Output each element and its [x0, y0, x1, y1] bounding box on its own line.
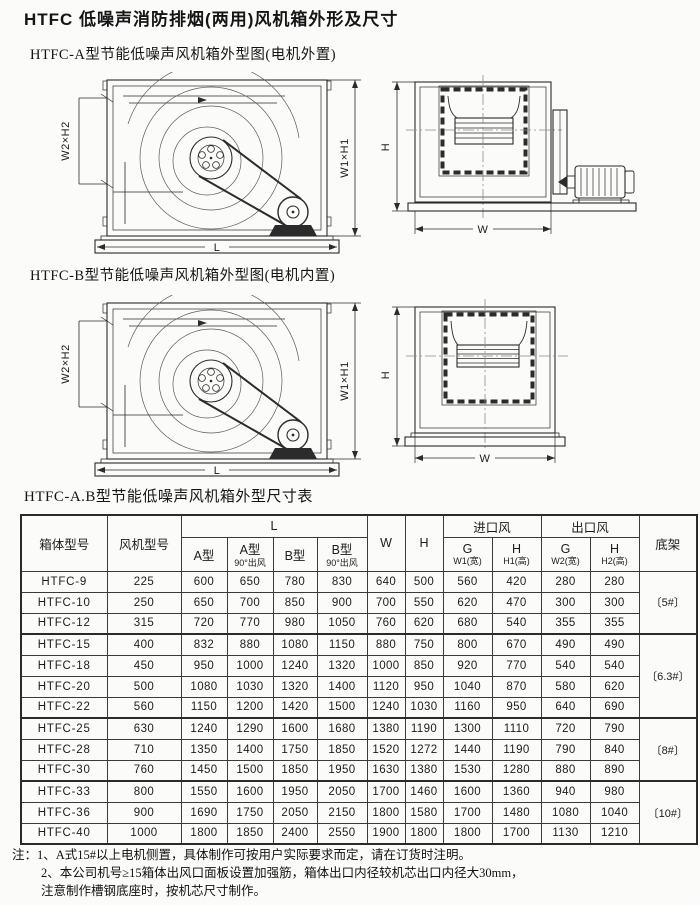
cell-value: 950 — [405, 676, 443, 697]
cell-value: 800 — [107, 781, 181, 802]
cell-value: 1690 — [181, 802, 227, 823]
cell-value: 840 — [590, 739, 639, 760]
table-row: HTFC-36900169017502050215018001580170014… — [21, 802, 697, 823]
cell-value: 1130 — [541, 823, 590, 844]
cell-value: 1600 — [227, 781, 273, 802]
cell-value: 1080 — [541, 802, 590, 823]
dimension-table-body: HTFC-9225600650780830640500560420280280〔… — [21, 571, 697, 844]
cell-value: 1050 — [317, 613, 367, 634]
cell-value: 830 — [317, 571, 367, 592]
cell-frame: 〔10#〕 — [639, 781, 697, 844]
table-row: HTFC-9225600650780830640500560420280280〔… — [21, 571, 697, 592]
cell-box-model: HTFC-18 — [21, 655, 107, 676]
cell-value: 880 — [227, 634, 273, 655]
cell-value: 1360 — [492, 781, 541, 802]
cell-value: 1210 — [590, 823, 639, 844]
cell-box-model: HTFC-30 — [21, 760, 107, 781]
col-header-frame: 底架 — [639, 515, 697, 571]
cell-value: 1272 — [405, 739, 443, 760]
cell-value: 355 — [590, 613, 639, 634]
table-row: HTFC-40100018001850240025501900180018001… — [21, 823, 697, 844]
cell-value: 490 — [541, 634, 590, 655]
cell-value: 780 — [273, 571, 317, 592]
cell-box-model: HTFC-10 — [21, 592, 107, 613]
cell-value: 600 — [181, 571, 227, 592]
cell-value: 1440 — [443, 739, 492, 760]
cell-value: 1120 — [367, 676, 405, 697]
cell-value: 750 — [405, 634, 443, 655]
cell-value: 250 — [107, 592, 181, 613]
table-row: HTFC-10250650700850900700550620470300300 — [21, 592, 697, 613]
cell-value: 1150 — [181, 697, 227, 718]
cell-value: 1240 — [181, 718, 227, 739]
cell-value: 690 — [590, 697, 639, 718]
cell-value: 670 — [492, 634, 541, 655]
cell-box-model: HTFC-9 — [21, 571, 107, 592]
cell-value: 1750 — [227, 802, 273, 823]
cell-value: 1320 — [317, 655, 367, 676]
page-title: HTFC 低噪声消防排烟(两用)风机箱外形及尺寸 — [24, 5, 398, 30]
col-header-inlet-group: 进口风 — [443, 515, 541, 537]
cell-value: 1800 — [367, 802, 405, 823]
cell-value: 1750 — [273, 739, 317, 760]
table-row: HTFC-15400832880108011508807508006704904… — [21, 634, 697, 655]
cell-value: 2050 — [273, 802, 317, 823]
cell-value: 550 — [405, 592, 443, 613]
cell-value: 225 — [107, 571, 181, 592]
cell-value: 1500 — [227, 760, 273, 781]
col-header-fan-model: 风机型号 — [107, 515, 181, 571]
cell-value: 1600 — [273, 718, 317, 739]
cell-value: 850 — [273, 592, 317, 613]
cell-value: 620 — [590, 676, 639, 697]
cell-value: 300 — [541, 592, 590, 613]
cell-value: 900 — [107, 802, 181, 823]
footnote-line: 注：1、A式15#以上电机侧置，具体制作可按用户实际要求而定，请在订货时注明。 — [12, 846, 688, 864]
cell-value: 1190 — [405, 718, 443, 739]
cell-value: 1350 — [181, 739, 227, 760]
col-header-outlet-h2: HH2(高) — [590, 537, 639, 571]
cell-value: 540 — [590, 655, 639, 676]
dim-label-w: W — [480, 453, 491, 465]
cell-value: 620 — [405, 613, 443, 634]
cell-frame: 〔6.3#〕 — [639, 634, 697, 718]
cell-value: 890 — [590, 760, 639, 781]
cell-value: 1630 — [367, 760, 405, 781]
col-header-box-model: 箱体型号 — [21, 515, 107, 571]
table-row: HTFC-22560115012001420150012401030116095… — [21, 697, 697, 718]
cell-value: 1280 — [492, 760, 541, 781]
dim-label-l: L — [214, 465, 221, 477]
cell-value: 280 — [590, 571, 639, 592]
col-header-l-a90: A型90°出风 — [227, 537, 273, 571]
table-row: HTFC-28710135014001750185015201272144011… — [21, 739, 697, 760]
figure-b-caption: HTFC-B型节能低噪声风机箱外型图(电机内置) — [30, 264, 335, 285]
figure-a-side-view: W2×H2 W1×H1 L — [30, 72, 370, 257]
figure-a-front-view: H W — [378, 72, 698, 257]
cell-value: 1080 — [273, 634, 317, 655]
cell-value: 2400 — [273, 823, 317, 844]
cell-box-model: HTFC-33 — [21, 781, 107, 802]
dimension-table: 箱体型号 风机型号 L W H 进口风 出口风 底架 A型 A型90°出风 B型… — [20, 514, 698, 845]
cell-value: 1600 — [443, 781, 492, 802]
cell-value: 640 — [541, 697, 590, 718]
cell-value: 710 — [107, 739, 181, 760]
cell-value: 490 — [590, 634, 639, 655]
cell-value: 580 — [541, 676, 590, 697]
cell-value: 1160 — [443, 697, 492, 718]
cell-value: 1520 — [367, 739, 405, 760]
col-header-outlet-w2: GW2(宽) — [541, 537, 590, 571]
dim-label-w2h2: W2×H2 — [60, 344, 72, 384]
col-header-outlet-group: 出口风 — [541, 515, 639, 537]
cell-value: 2150 — [317, 802, 367, 823]
cell-value: 770 — [492, 655, 541, 676]
cell-value: 1030 — [227, 676, 273, 697]
col-header-inlet-h1: HH1(高) — [492, 537, 541, 571]
cell-box-model: HTFC-22 — [21, 697, 107, 718]
col-header-l-a: A型 — [181, 537, 227, 571]
table-row: HTFC-25630124012901600168013801190130011… — [21, 718, 697, 739]
cell-value: 650 — [181, 592, 227, 613]
cell-value: 1400 — [227, 739, 273, 760]
cell-value: 1460 — [405, 781, 443, 802]
cell-value: 1240 — [273, 655, 317, 676]
cell-value: 980 — [273, 613, 317, 634]
cell-frame: 〔8#〕 — [639, 718, 697, 781]
cell-value: 450 — [107, 655, 181, 676]
col-header-l-group: L — [181, 515, 367, 537]
cell-value: 1080 — [181, 676, 227, 697]
cell-value: 1850 — [227, 823, 273, 844]
cell-value: 640 — [367, 571, 405, 592]
cell-box-model: HTFC-28 — [21, 739, 107, 760]
cell-box-model: HTFC-15 — [21, 634, 107, 655]
cell-value: 1500 — [317, 697, 367, 718]
cell-value: 1800 — [181, 823, 227, 844]
cell-value: 1030 — [405, 697, 443, 718]
cell-value: 700 — [227, 592, 273, 613]
dim-label-h: H — [380, 371, 392, 379]
cell-value: 1480 — [492, 802, 541, 823]
cell-value: 1950 — [317, 760, 367, 781]
cell-value: 420 — [492, 571, 541, 592]
cell-value: 500 — [107, 676, 181, 697]
cell-value: 790 — [590, 718, 639, 739]
cell-value: 560 — [107, 697, 181, 718]
cell-value: 1900 — [367, 823, 405, 844]
cell-value: 760 — [367, 613, 405, 634]
table-row: HTFC-12315720770980105076062068054035535… — [21, 613, 697, 634]
cell-box-model: HTFC-36 — [21, 802, 107, 823]
footnote-line: 2、本公司机号≥15箱体出风口面板设置加强筋，箱体出口内径较机芯出口内径大30m… — [41, 864, 688, 882]
cell-value: 300 — [590, 592, 639, 613]
table-row: HTFC-30760145015001850195016301380153012… — [21, 760, 697, 781]
cell-value: 280 — [541, 571, 590, 592]
cell-frame: 〔5#〕 — [639, 571, 697, 634]
fan-box-side-drawing — [79, 295, 361, 476]
dim-label-w2h2: W2×H2 — [60, 121, 72, 161]
dim-label-w1h1: W1×H1 — [339, 138, 351, 178]
cell-value: 1800 — [405, 823, 443, 844]
cell-value: 700 — [367, 592, 405, 613]
cell-value: 1190 — [492, 739, 541, 760]
cell-box-model: HTFC-20 — [21, 676, 107, 697]
col-header-h: H — [405, 515, 443, 571]
cell-value: 1950 — [273, 781, 317, 802]
figure-a-caption: HTFC-A型节能低噪声风机箱外型图(电机外置) — [30, 43, 336, 64]
cell-box-model: HTFC-40 — [21, 823, 107, 844]
cell-value: 720 — [181, 613, 227, 634]
dim-label-h: H — [380, 143, 392, 151]
cell-value: 1110 — [492, 718, 541, 739]
fan-box-front-drawing — [392, 299, 568, 463]
cell-value: 315 — [107, 613, 181, 634]
cell-value: 1420 — [273, 697, 317, 718]
figure-b-side-view: W2×H2 W1×H1 L — [30, 295, 370, 480]
cell-value: 920 — [443, 655, 492, 676]
cell-value: 680 — [443, 613, 492, 634]
cell-value: 880 — [367, 634, 405, 655]
cell-value: 1400 — [317, 676, 367, 697]
cell-value: 1450 — [181, 760, 227, 781]
louver-grille — [455, 118, 513, 144]
cell-value: 1000 — [367, 655, 405, 676]
cell-value: 980 — [590, 781, 639, 802]
cell-value: 1040 — [590, 802, 639, 823]
cell-value: 1700 — [367, 781, 405, 802]
cell-value: 1150 — [317, 634, 367, 655]
footnote-line: 注意制作槽钢底座时，按机芯尺寸制作。 — [41, 882, 688, 900]
col-header-l-b: B型 — [273, 537, 317, 571]
table-row: HTFC-33800155016001950205017001460160013… — [21, 781, 697, 802]
col-header-inlet-w1: GW1(宽) — [443, 537, 492, 571]
cell-value: 1320 — [273, 676, 317, 697]
cell-value: 630 — [107, 718, 181, 739]
cell-value: 1700 — [443, 802, 492, 823]
cell-value: 1200 — [227, 697, 273, 718]
cell-value: 500 — [405, 571, 443, 592]
cell-box-model: HTFC-25 — [21, 718, 107, 739]
cell-value: 2050 — [317, 781, 367, 802]
cell-value: 355 — [541, 613, 590, 634]
cell-value: 880 — [541, 760, 590, 781]
cell-value: 900 — [317, 592, 367, 613]
cell-value: 1850 — [317, 739, 367, 760]
dim-label-w1h1: W1×H1 — [339, 361, 351, 401]
cell-value: 540 — [541, 655, 590, 676]
fan-box-side-drawing — [79, 72, 361, 253]
cell-value: 720 — [541, 718, 590, 739]
cell-value: 1000 — [227, 655, 273, 676]
col-header-w: W — [367, 515, 405, 571]
cell-value: 790 — [541, 739, 590, 760]
cell-value: 760 — [107, 760, 181, 781]
dim-label-l: L — [214, 242, 221, 254]
cell-value: 1550 — [181, 781, 227, 802]
cell-value: 1580 — [405, 802, 443, 823]
cell-value: 1380 — [405, 760, 443, 781]
dimension-table-title: HTFC-A.B型节能低噪声风机箱外型尺寸表 — [24, 485, 313, 506]
cell-value: 850 — [405, 655, 443, 676]
table-row: HTFC-18450950100012401320100085092077054… — [21, 655, 697, 676]
col-header-l-b90: B型90°出风 — [317, 537, 367, 571]
cell-value: 470 — [492, 592, 541, 613]
cell-value: 950 — [181, 655, 227, 676]
cell-value: 940 — [541, 781, 590, 802]
cell-value: 620 — [443, 592, 492, 613]
cell-value: 800 — [443, 634, 492, 655]
cell-value: 650 — [227, 571, 273, 592]
figure-b-front-view: H W — [378, 295, 698, 480]
external-motor — [558, 166, 634, 203]
cell-box-model: HTFC-12 — [21, 613, 107, 634]
cell-value: 1700 — [492, 823, 541, 844]
cell-value: 1680 — [317, 718, 367, 739]
dim-label-w: W — [478, 224, 489, 236]
footnotes: 注：1、A式15#以上电机侧置，具体制作可按用户实际要求而定，请在订货时注明。 … — [12, 846, 688, 900]
cell-value: 540 — [492, 613, 541, 634]
cell-value: 1850 — [273, 760, 317, 781]
cell-value: 870 — [492, 676, 541, 697]
cell-value: 1000 — [107, 823, 181, 844]
cell-value: 1800 — [443, 823, 492, 844]
fan-box-front-drawing — [392, 75, 636, 234]
cell-value: 1240 — [367, 697, 405, 718]
cell-value: 770 — [227, 613, 273, 634]
cell-value: 1380 — [367, 718, 405, 739]
cell-value: 1040 — [443, 676, 492, 697]
cell-value: 1300 — [443, 718, 492, 739]
table-row: HTFC-20500108010301320140011209501040870… — [21, 676, 697, 697]
cell-value: 2550 — [317, 823, 367, 844]
cell-value: 560 — [443, 571, 492, 592]
cell-value: 950 — [492, 697, 541, 718]
cell-value: 400 — [107, 634, 181, 655]
cell-value: 1530 — [443, 760, 492, 781]
cell-value: 1290 — [227, 718, 273, 739]
cell-value: 832 — [181, 634, 227, 655]
